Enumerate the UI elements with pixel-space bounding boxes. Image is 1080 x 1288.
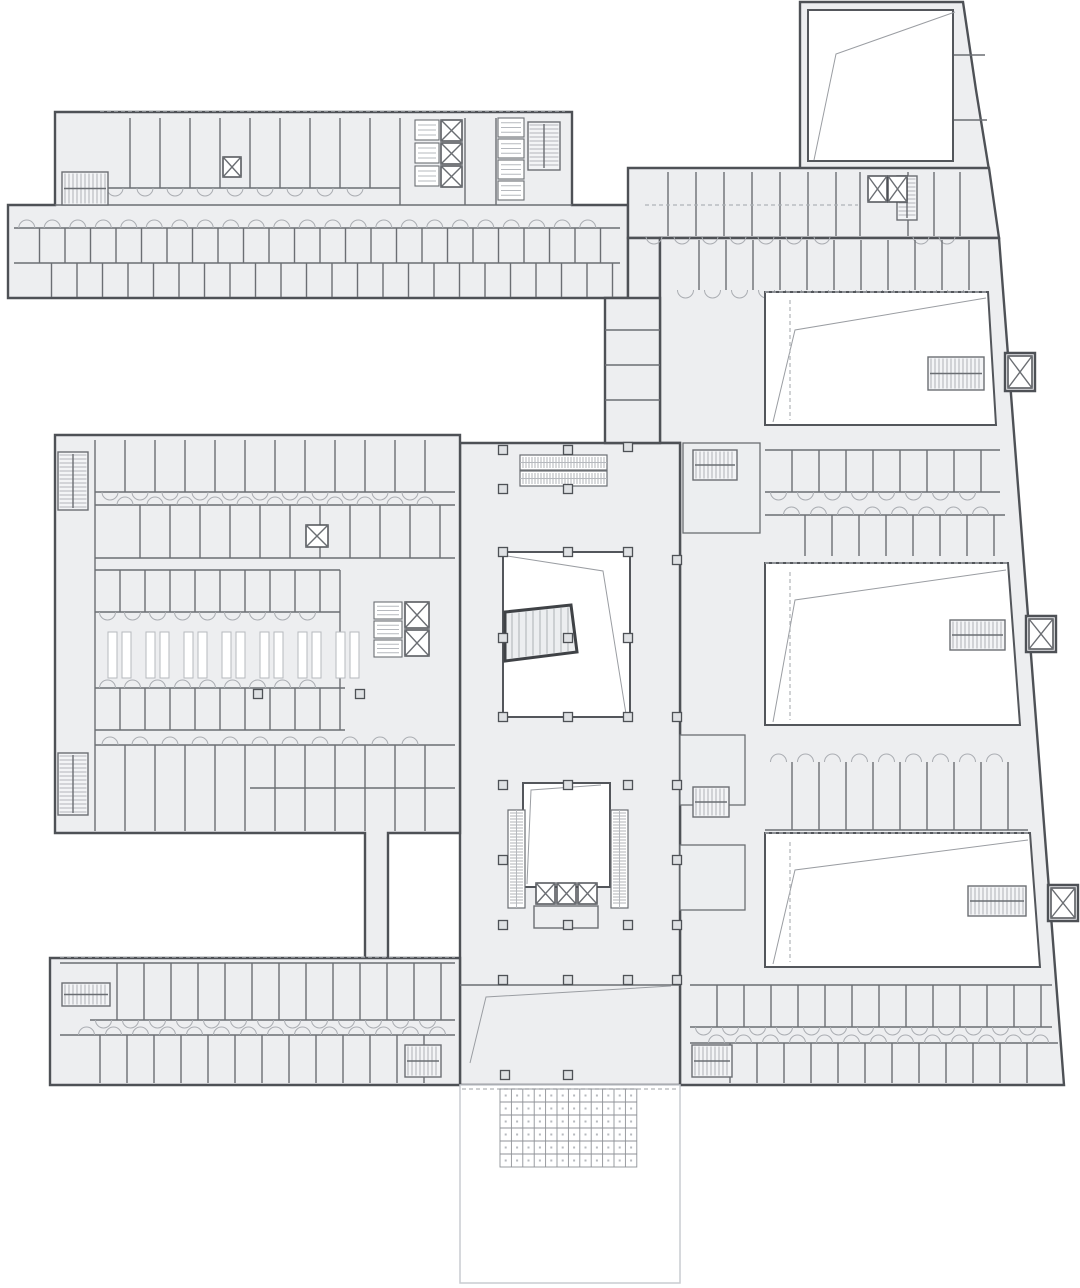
elevator-shaft [405, 630, 429, 656]
column [673, 556, 682, 565]
elevator-shaft [536, 883, 555, 904]
bench [222, 632, 231, 678]
column [624, 713, 633, 722]
stair [693, 787, 729, 817]
top-right-band [628, 168, 999, 238]
stair [950, 620, 1005, 650]
column [564, 1071, 573, 1080]
stair [928, 357, 984, 390]
elevator-shaft [578, 883, 597, 904]
bench [298, 632, 307, 678]
column [624, 548, 633, 557]
elevator-cabin [498, 139, 524, 158]
bench [198, 632, 207, 678]
floor-plan-page [0, 0, 1080, 1288]
stair [62, 172, 108, 205]
elevator-cabin [498, 181, 524, 200]
core-block [680, 845, 745, 910]
column [673, 781, 682, 790]
stair [528, 122, 560, 170]
column [499, 446, 508, 455]
column [564, 976, 573, 985]
column [624, 921, 633, 930]
column [564, 446, 573, 455]
stair [58, 452, 88, 510]
column [624, 781, 633, 790]
column [564, 548, 573, 557]
column [673, 976, 682, 985]
elevator-shaft [405, 602, 429, 628]
bench [274, 632, 283, 678]
elevator-cabin [374, 621, 402, 638]
bench [160, 632, 169, 678]
elevator-shaft [868, 176, 887, 202]
column [624, 976, 633, 985]
elevator-cabin [374, 602, 402, 619]
bench [184, 632, 193, 678]
elevator-cabin [498, 160, 524, 179]
floor-plan-canvas [0, 0, 1080, 1288]
column [254, 690, 263, 699]
elevator-shaft [1008, 356, 1032, 388]
elevator-shaft [441, 166, 462, 187]
stair [968, 886, 1026, 916]
column [499, 713, 508, 722]
elevator-shaft [888, 176, 907, 202]
elevator-cabin [415, 166, 439, 186]
elevator-shaft [1051, 888, 1075, 918]
bench [312, 632, 321, 678]
column [564, 781, 573, 790]
bench [236, 632, 245, 678]
bench [350, 632, 359, 678]
column [356, 690, 365, 699]
column [673, 856, 682, 865]
bench [146, 632, 155, 678]
column [564, 634, 573, 643]
escalator [520, 455, 607, 470]
column [499, 921, 508, 930]
column [499, 485, 508, 494]
elevator-cabin [415, 143, 439, 163]
elevator-cabin [415, 120, 439, 140]
bench [122, 632, 131, 678]
column [673, 921, 682, 930]
stair [693, 450, 737, 480]
elevator-cabin [374, 640, 402, 657]
connector-block [605, 298, 660, 443]
escalator [508, 810, 525, 908]
stair [62, 983, 110, 1006]
column [564, 713, 573, 722]
lower-atrium [523, 783, 610, 887]
central-hall [460, 443, 680, 1085]
column [501, 1071, 510, 1080]
column [564, 921, 573, 930]
column [499, 634, 508, 643]
bench [260, 632, 269, 678]
stair [58, 753, 88, 815]
bench [108, 632, 117, 678]
elevator-shaft [306, 525, 328, 547]
column [499, 548, 508, 557]
elevator-cabin [498, 118, 524, 137]
elevator-shaft [1029, 619, 1053, 649]
escalator [611, 810, 628, 908]
escalator [520, 471, 607, 486]
column [673, 713, 682, 722]
stair [692, 1045, 732, 1077]
column [499, 856, 508, 865]
column [564, 485, 573, 494]
elevator-shaft [441, 143, 462, 164]
column [499, 781, 508, 790]
column [499, 976, 508, 985]
elevator-shaft [557, 883, 576, 904]
elevator-shaft [223, 157, 241, 177]
elevator-shaft [441, 120, 462, 141]
bench [336, 632, 345, 678]
column [624, 634, 633, 643]
stair [405, 1045, 441, 1077]
column [624, 443, 633, 452]
band-stub [628, 238, 660, 300]
